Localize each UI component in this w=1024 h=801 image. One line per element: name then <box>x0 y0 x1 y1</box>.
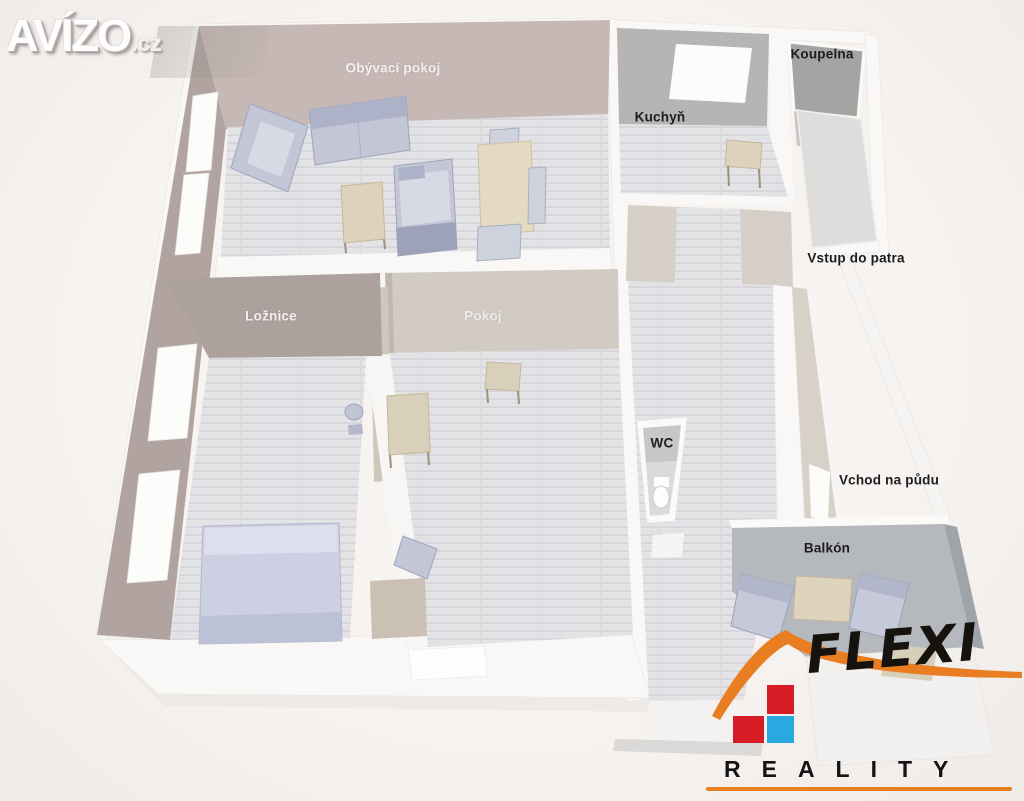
flexi-logo-underline <box>706 787 1012 791</box>
toilet <box>654 477 669 487</box>
dining-chair <box>528 167 546 224</box>
room-label-koupelna: Koupelna <box>790 47 853 62</box>
blue-square-icon <box>767 716 794 743</box>
room-label-obyvaci-pokoj: Obývací pokoj <box>346 61 441 76</box>
red-square-icon <box>767 685 794 714</box>
room-label-vstup-do-patra: Vstup do patra <box>807 251 904 266</box>
room-label-kuchyn: Kuchyň <box>635 110 686 125</box>
corner-sofa <box>394 159 457 256</box>
kitchen-floor <box>619 124 788 197</box>
floorplan-screenshot: Obývací pokoj Kuchyň Koupelna Vstup do p… <box>0 0 1024 801</box>
room-label-pokoj: Pokoj <box>464 309 502 324</box>
kitchen-window <box>669 44 752 103</box>
watermark-shadow <box>149 26 270 78</box>
avizo-watermark: AVÍZO.cz <box>6 10 162 62</box>
door-opening <box>809 464 830 521</box>
red-square-icon <box>733 716 764 743</box>
cabinet <box>370 578 427 639</box>
flexi-reality-logo: FLEXI REALITY <box>690 610 1024 801</box>
room-label-wc: WC <box>651 436 674 451</box>
area-vstup-do-patra <box>797 110 877 248</box>
bed <box>199 523 342 644</box>
room-loznice <box>166 273 382 644</box>
floor-mat <box>651 533 684 558</box>
dining-chair <box>477 224 521 261</box>
room-label-vchod-na-pudu: Vchod na půdu <box>839 473 939 488</box>
entry-floor <box>797 110 877 248</box>
room-label-balkon: Balkón <box>804 541 850 556</box>
avizo-logo-text: AVÍZO <box>6 10 130 61</box>
room-label-loznice: Ložnice <box>245 309 297 324</box>
room-pokoj <box>366 269 633 648</box>
avizo-logo-tld: .cz <box>131 30 162 56</box>
flexi-logo-subtitle: REALITY <box>724 756 969 783</box>
front-door <box>408 646 488 680</box>
